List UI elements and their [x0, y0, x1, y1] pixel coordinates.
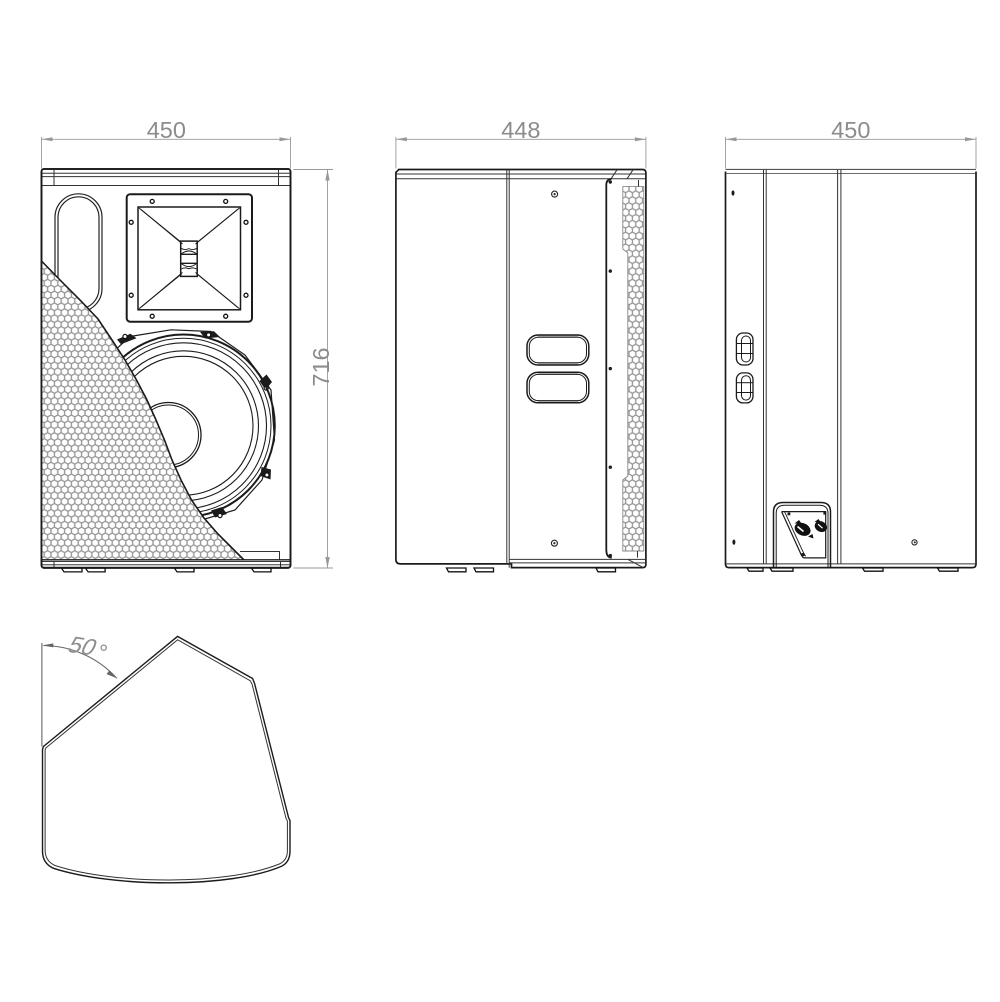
svg-text:448: 448 [501, 117, 540, 143]
svg-text:450: 450 [831, 117, 870, 143]
svg-text:450: 450 [147, 117, 186, 143]
svg-text:50: 50 [63, 632, 101, 661]
svg-text:716: 716 [308, 347, 334, 386]
